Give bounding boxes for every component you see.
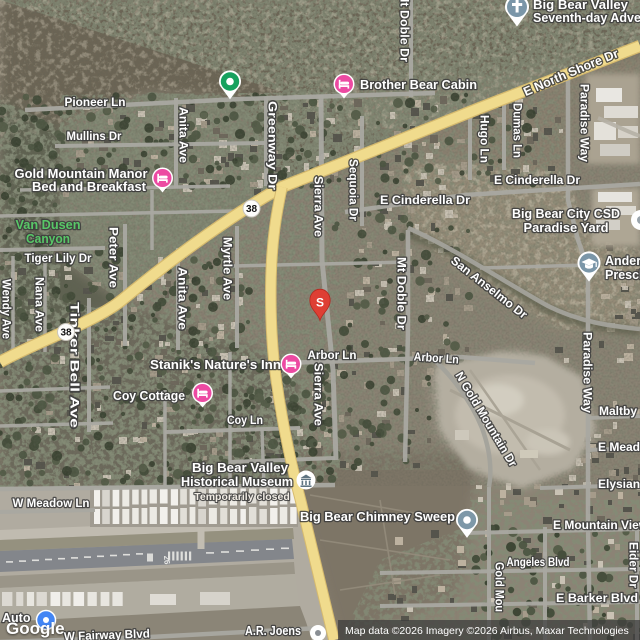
svg-text:Big Bear Valley: Big Bear Valley — [192, 461, 288, 475]
svg-text:Mt Doble Dr: Mt Doble Dr — [395, 257, 409, 330]
svg-text:Sequoia Dr: Sequoia Dr — [347, 159, 361, 221]
svg-text:E Mountain View: E Mountain View — [553, 518, 640, 532]
svg-text:Anita Ave: Anita Ave — [177, 107, 191, 163]
svg-text:Pioneer Ln: Pioneer Ln — [65, 95, 126, 109]
svg-text:Sierra Ave: Sierra Ave — [312, 176, 326, 237]
svg-text:Hugo Ln: Hugo Ln — [478, 115, 492, 163]
svg-text:A.R. Joens: A.R. Joens — [245, 624, 301, 638]
svg-text:W Meadow Ln: W Meadow Ln — [13, 496, 90, 510]
svg-text:E Barker Blvd: E Barker Blvd — [556, 591, 638, 605]
svg-text:Big Bear City CSD: Big Bear City CSD — [512, 207, 620, 221]
svg-text:Van Dusen: Van Dusen — [16, 218, 81, 232]
svg-text:Arbor Ln: Arbor Ln — [308, 348, 357, 362]
svg-text:Paradise Way: Paradise Way — [581, 332, 595, 413]
svg-text:Canyon: Canyon — [26, 232, 70, 246]
svg-text:Tiger Lily Dr: Tiger Lily Dr — [25, 251, 92, 265]
svg-text:Seventh-day Adventist: Seventh-day Adventist — [533, 11, 640, 25]
svg-text:Mt Doble Dr: Mt Doble Dr — [398, 0, 412, 62]
svg-text:Anderson: Anderson — [605, 254, 640, 268]
svg-text:Stanik's Nature's Inn: Stanik's Nature's Inn — [150, 358, 281, 372]
svg-text:Eider Dr: Eider Dr — [627, 542, 640, 588]
svg-text:Coy Cottage: Coy Cottage — [113, 389, 185, 403]
svg-text:Map data ©2026 Imagery ©2026 A: Map data ©2026 Imagery ©2026 Airbus, Max… — [345, 625, 629, 637]
svg-text:Angeles Blvd: Angeles Blvd — [507, 555, 570, 569]
svg-text:Google: Google — [6, 619, 65, 638]
svg-text:Wendy Ave: Wendy Ave — [0, 279, 14, 339]
svg-text:Bed and Breakfast: Bed and Breakfast — [32, 180, 147, 194]
svg-text:Elysian Blvd: Elysian Blvd — [598, 477, 640, 491]
svg-text:Paradise Yard: Paradise Yard — [524, 221, 609, 235]
svg-text:Peter Ave: Peter Ave — [107, 227, 121, 288]
svg-text:Myrtle Ave: Myrtle Ave — [221, 237, 235, 300]
svg-text:Mullins Dr: Mullins Dr — [67, 129, 122, 143]
svg-text:Brother Bear Cabin: Brother Bear Cabin — [360, 78, 477, 92]
svg-text:W Fairway Blvd: W Fairway Blvd — [64, 627, 150, 640]
svg-text:E Cinderella Dr: E Cinderella Dr — [494, 173, 580, 187]
svg-text:Maltby Rd: Maltby Rd — [599, 404, 640, 418]
svg-text:38: 38 — [246, 204, 258, 215]
svg-text:Historical Museum: Historical Museum — [181, 475, 293, 489]
svg-text:E Meadow Ln: E Meadow Ln — [598, 440, 640, 454]
svg-text:Nana Ave: Nana Ave — [33, 277, 47, 332]
svg-text:Greenway Dr: Greenway Dr — [266, 101, 280, 190]
svg-text:E Cinderella Dr: E Cinderella Dr — [380, 193, 470, 207]
svg-text:26: 26 — [162, 555, 172, 565]
svg-text:Dumas Ln: Dumas Ln — [511, 103, 525, 158]
svg-text:38: 38 — [60, 328, 72, 339]
svg-text:Coy Ln: Coy Ln — [227, 413, 263, 427]
svg-text:Big Bear Chimney Sweep: Big Bear Chimney Sweep — [300, 510, 455, 524]
svg-text:Gold Mou: Gold Mou — [493, 562, 507, 612]
svg-text:Anita Ave: Anita Ave — [176, 267, 190, 330]
svg-text:Temporarily closed: Temporarily closed — [194, 491, 290, 503]
svg-text:S: S — [316, 296, 324, 310]
svg-text:Tinker Bell Ave: Tinker Bell Ave — [68, 302, 82, 428]
svg-text:Paradise Way: Paradise Way — [578, 84, 592, 162]
svg-text:Gold Mountain Manor: Gold Mountain Manor — [15, 167, 148, 181]
svg-text:Preschool: Preschool — [605, 268, 640, 282]
svg-text:Sierra Ave: Sierra Ave — [312, 363, 326, 426]
